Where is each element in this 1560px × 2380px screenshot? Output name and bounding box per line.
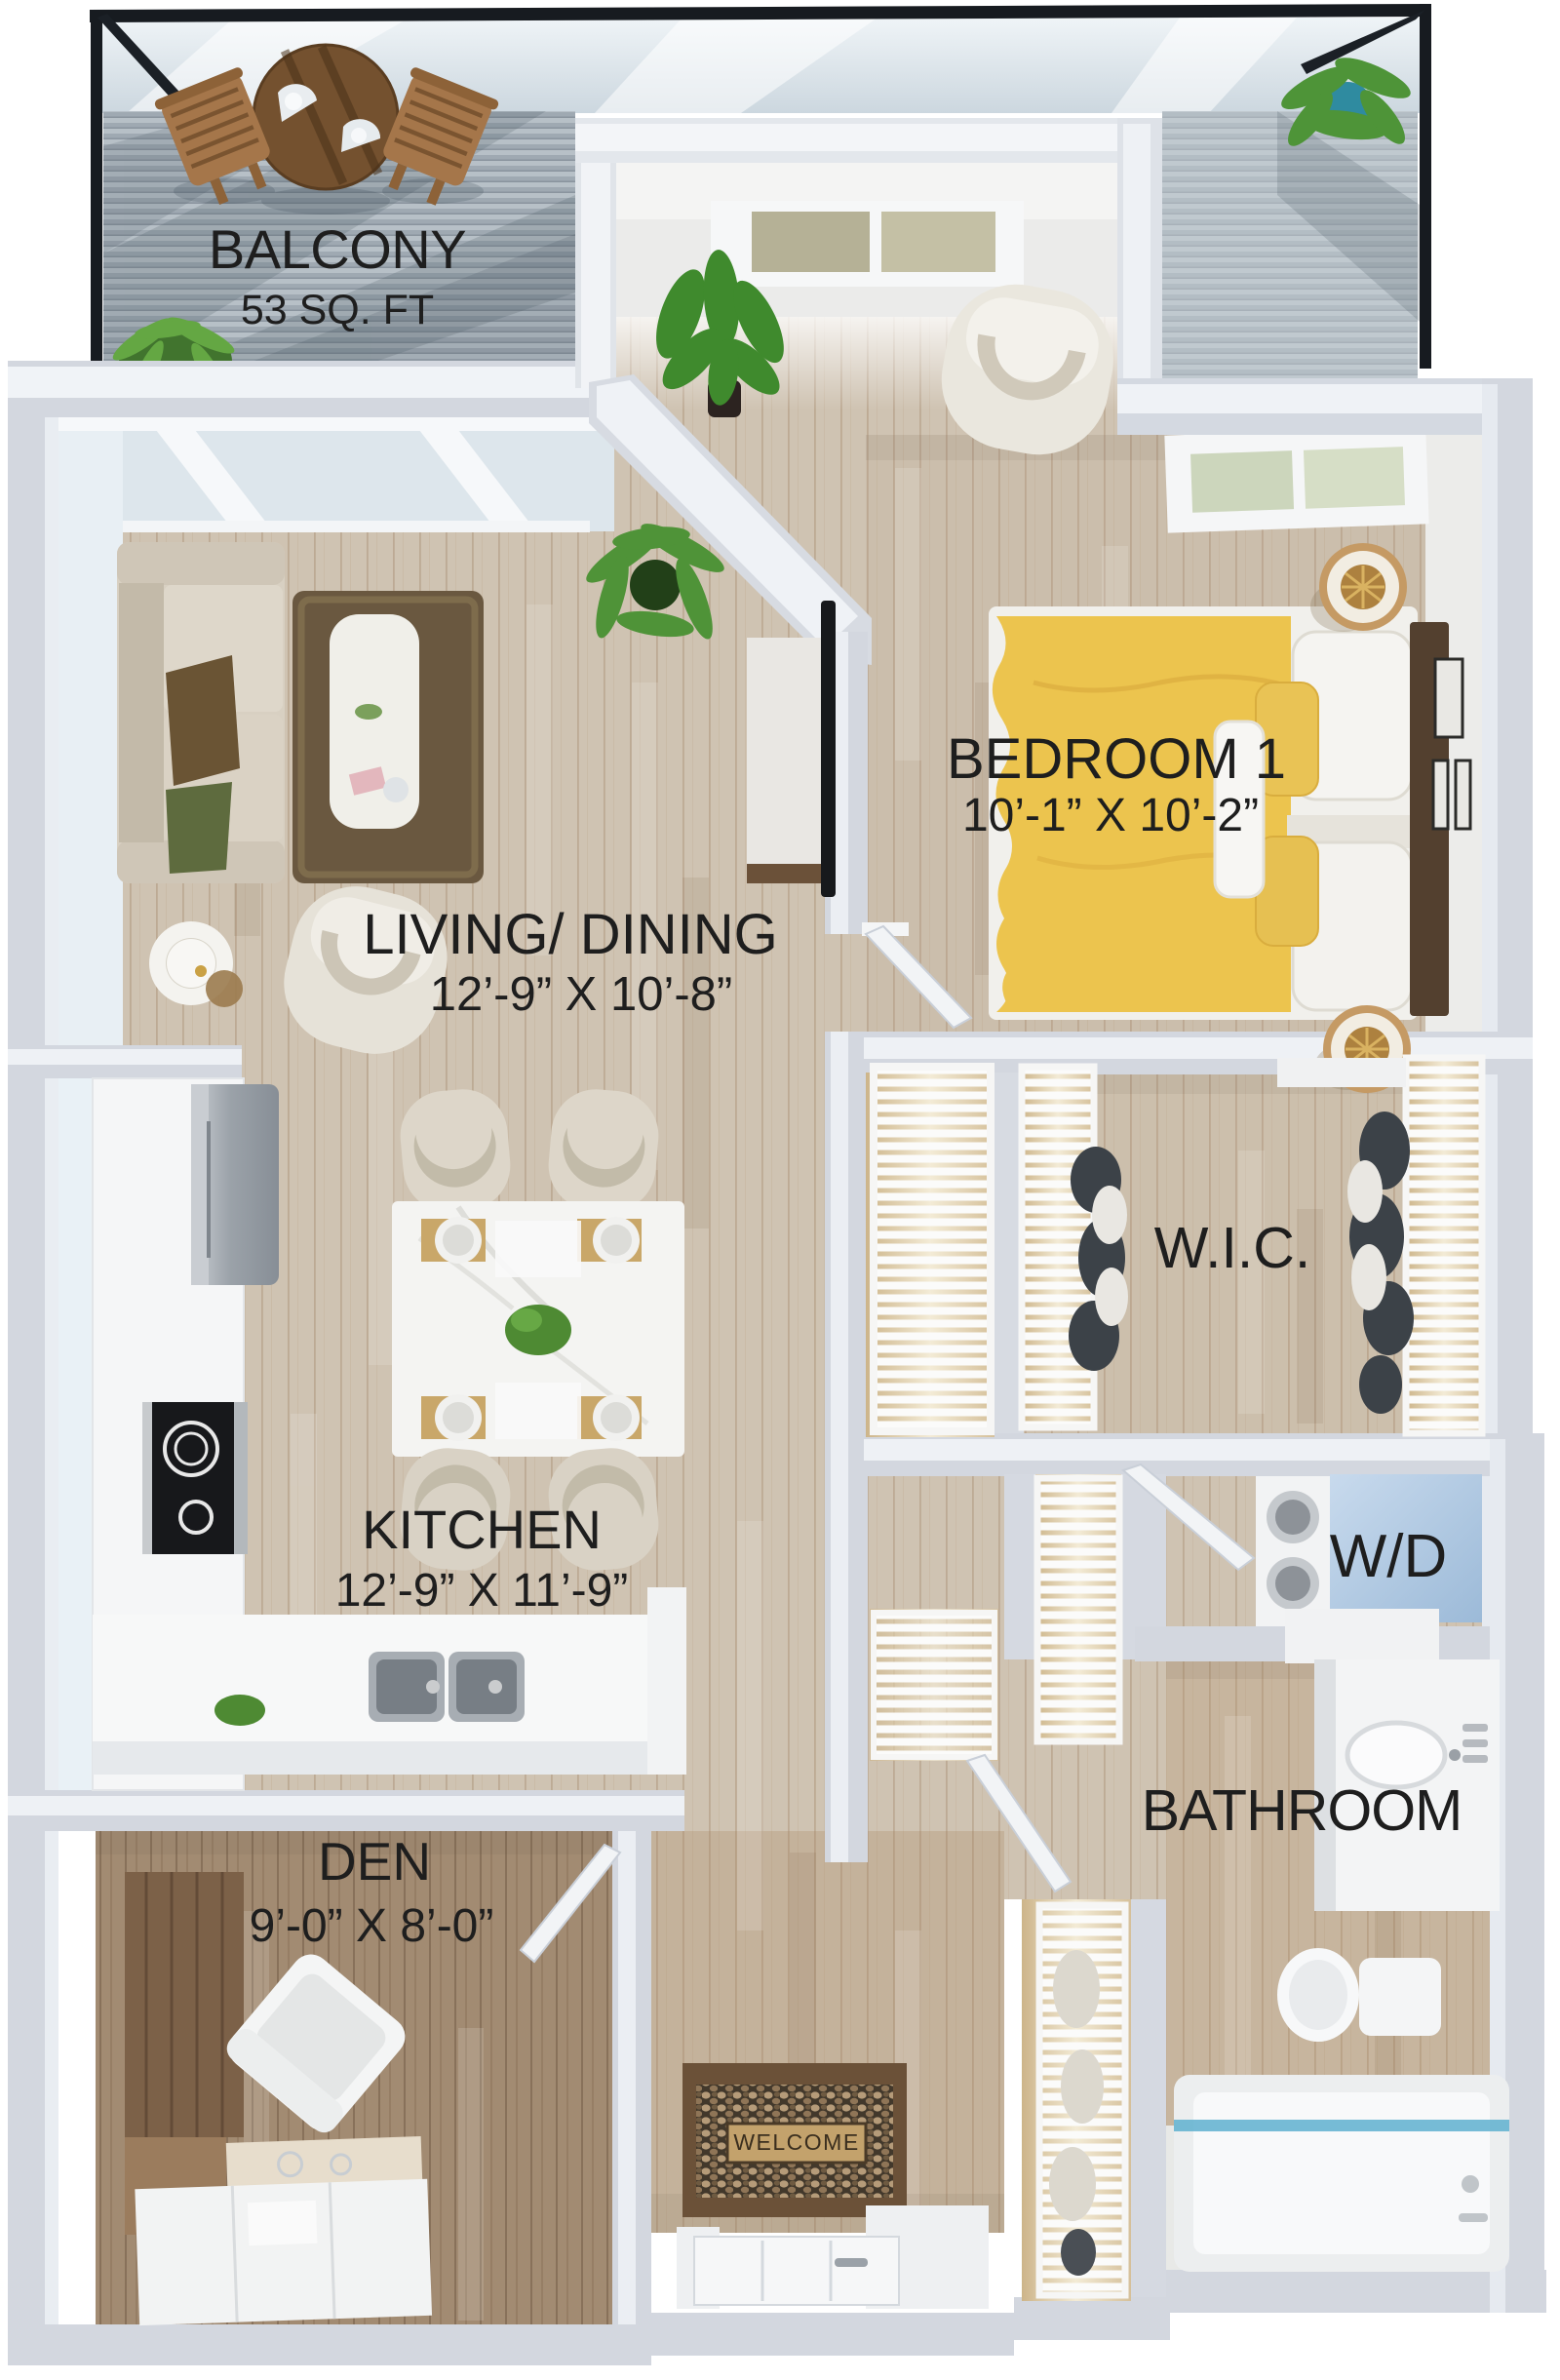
svg-text:W.I.C.: W.I.C. xyxy=(1154,1216,1311,1280)
svg-text:KITCHEN: KITCHEN xyxy=(362,1499,602,1560)
svg-text:WELCOME: WELCOME xyxy=(733,2129,859,2155)
svg-text:LIVING/ DINING: LIVING/ DINING xyxy=(363,903,777,966)
svg-text:BATHROOM: BATHROOM xyxy=(1142,1778,1462,1843)
svg-text:10’-1” X 10’-2”: 10’-1” X 10’-2” xyxy=(962,790,1259,841)
svg-text:DEN: DEN xyxy=(318,1831,431,1892)
svg-text:12’-9” X 11’-9”: 12’-9” X 11’-9” xyxy=(335,1565,629,1617)
svg-text:53 SQ. FT: 53 SQ. FT xyxy=(241,287,434,333)
svg-text:9’-0” X 8’-0”: 9’-0” X 8’-0” xyxy=(250,1900,494,1952)
svg-text:W/D: W/D xyxy=(1330,1523,1448,1590)
svg-text:BALCONY: BALCONY xyxy=(209,218,466,280)
svg-text:BEDROOM 1: BEDROOM 1 xyxy=(947,727,1286,791)
svg-text:12’-9” X 10’-8”: 12’-9” X 10’-8” xyxy=(430,968,732,1021)
